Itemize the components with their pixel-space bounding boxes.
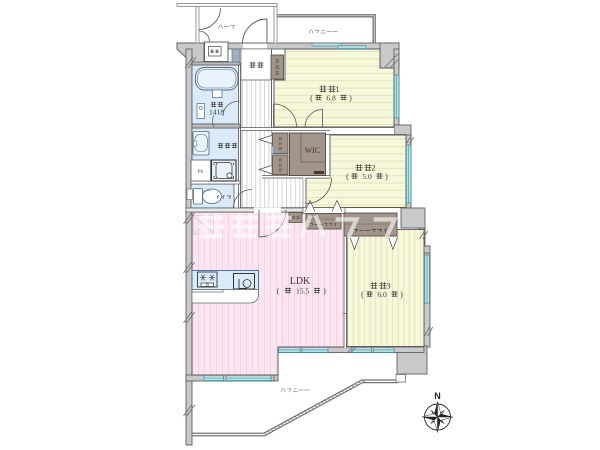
svg-text:): ) bbox=[323, 287, 326, 296]
svg-text:(: ( bbox=[361, 290, 364, 299]
svg-text:1418: 1418 bbox=[209, 108, 224, 117]
svg-text:3: 3 bbox=[386, 281, 390, 291]
svg-text:1: 1 bbox=[335, 84, 339, 94]
svg-text:): ) bbox=[400, 290, 403, 299]
svg-text:6.0: 6.0 bbox=[377, 290, 387, 299]
svg-text:(: ( bbox=[310, 94, 313, 103]
svg-text:PS: PS bbox=[198, 170, 204, 175]
svg-text:5.0: 5.0 bbox=[362, 172, 372, 181]
svg-text:): ) bbox=[349, 94, 352, 103]
svg-text:15.5: 15.5 bbox=[296, 286, 309, 295]
svg-text:N: N bbox=[434, 391, 441, 401]
svg-text:2: 2 bbox=[371, 163, 375, 173]
svg-text:WIC: WIC bbox=[305, 146, 321, 155]
svg-text:(: ( bbox=[277, 287, 280, 296]
svg-text:(: ( bbox=[346, 172, 349, 181]
svg-text:): ) bbox=[385, 172, 388, 181]
svg-text:6.8: 6.8 bbox=[326, 93, 336, 102]
